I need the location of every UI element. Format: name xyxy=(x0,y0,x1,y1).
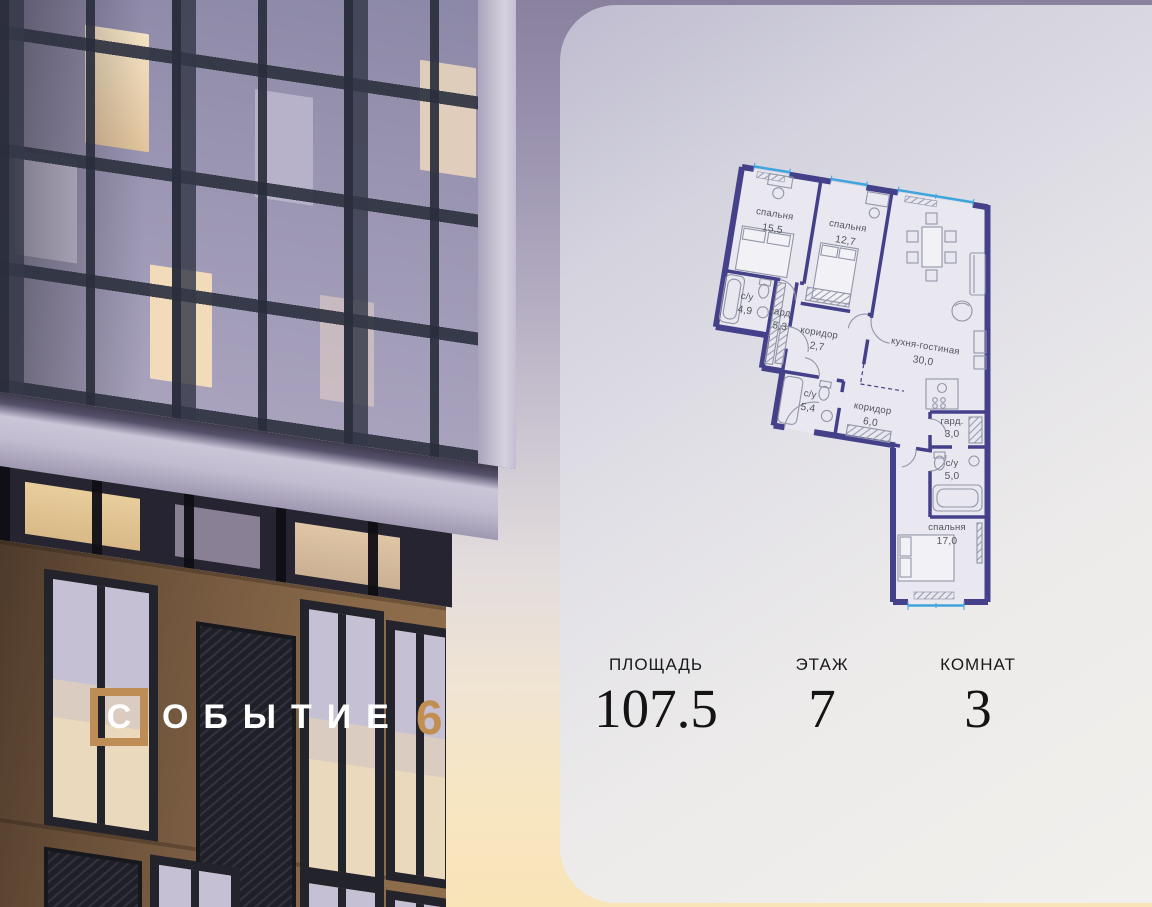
building-photo xyxy=(0,0,516,907)
radiator xyxy=(914,592,954,599)
project-logo: С ОБЫТИЕ 6 xyxy=(90,688,443,746)
logo-number: 6 xyxy=(416,695,443,743)
stat-value: 7 xyxy=(752,679,892,739)
corner-pillar xyxy=(478,0,516,469)
stat-value: 107.5 xyxy=(586,679,726,739)
stat-label: ЭТАЖ xyxy=(752,655,892,675)
stat-value: 3 xyxy=(908,679,1048,739)
stat-floor: ЭТАЖ 7 xyxy=(752,655,892,739)
building-upper-facade xyxy=(0,0,516,469)
stat-label: КОМНАТ xyxy=(908,655,1048,675)
facade-window-grid xyxy=(0,0,516,469)
room-label: с/у xyxy=(803,388,817,401)
stat-rooms: КОМНАТ 3 xyxy=(908,655,1048,739)
room-label: гард. xyxy=(940,416,963,427)
logo-square-frame-icon: С xyxy=(90,688,148,746)
room-area: 3,0 xyxy=(945,429,960,440)
window xyxy=(386,890,446,907)
room-area: 5,0 xyxy=(945,471,960,482)
room-area: 17,0 xyxy=(937,536,958,547)
stat-area: ПЛОЩАДЬ 107.5 xyxy=(586,655,726,739)
floorplan: спальня 15,5 спальня 12,7 кухня-гостиная… xyxy=(700,155,1010,625)
logo-text: ОБЫТИЕ xyxy=(162,700,404,734)
textured-panel xyxy=(44,847,142,907)
room-label: спальня xyxy=(928,522,966,533)
apartment-card[interactable]: спальня 15,5 спальня 12,7 кухня-гостиная… xyxy=(560,5,1152,903)
room-label: с/у xyxy=(740,291,754,304)
apartment-card-page: С ОБЫТИЕ 6 xyxy=(0,0,1152,907)
stat-label: ПЛОЩАДЬ xyxy=(586,655,726,675)
window xyxy=(386,620,446,890)
room-label: с/у xyxy=(946,458,959,469)
logo-first-letter: С xyxy=(107,700,132,734)
